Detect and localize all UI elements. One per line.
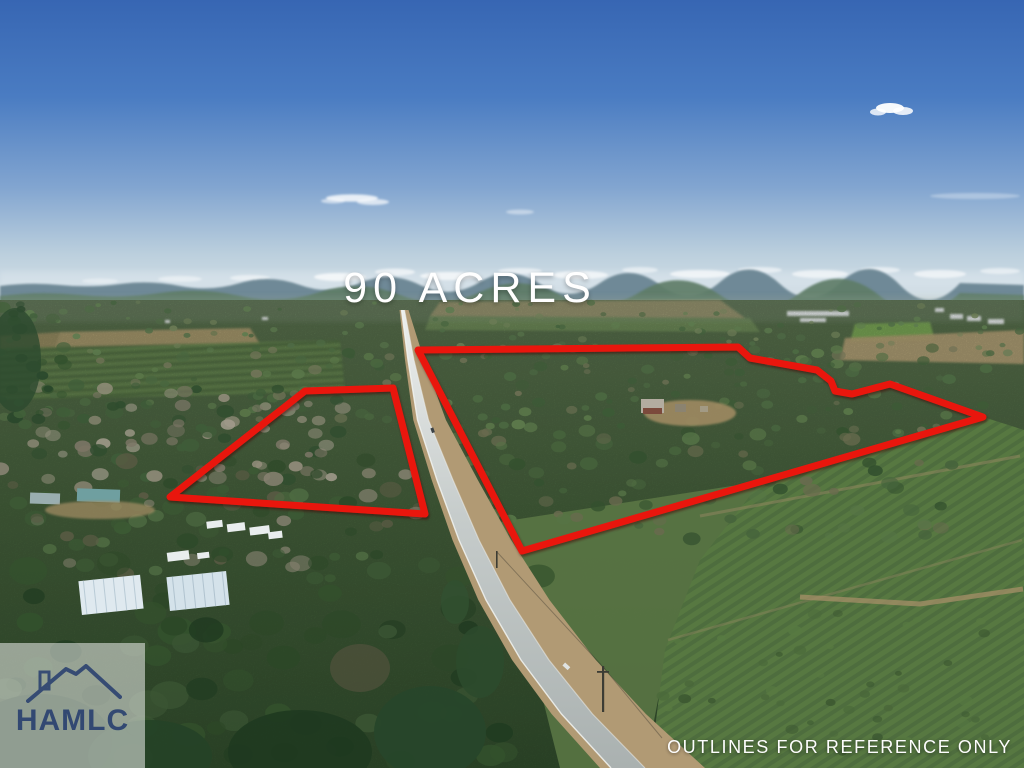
tree-blob: [940, 411, 952, 420]
tree-blob: [559, 325, 566, 330]
tree-blob: [717, 635, 726, 641]
tree-blob: [891, 402, 902, 410]
tree-blob: [942, 374, 956, 384]
tree-blob: [734, 402, 744, 409]
tree-blob: [684, 374, 691, 379]
tree-blob: [54, 355, 68, 365]
tree-blob: [277, 516, 292, 527]
tree-blob: [881, 531, 898, 543]
tree-blob: [325, 574, 336, 582]
tree-blob: [753, 337, 758, 341]
tree-blob: [664, 705, 673, 711]
tree-blob: [308, 428, 323, 438]
tree-blob: [319, 440, 334, 451]
tree-blob: [806, 406, 817, 414]
tree-blob: [838, 523, 851, 532]
tree-blob: [584, 415, 592, 421]
tree-blob: [873, 716, 883, 723]
tree-blob: [217, 405, 235, 418]
tree-blob: [370, 550, 383, 559]
tree-blob: [917, 519, 931, 529]
tree-blob: [209, 471, 227, 484]
tree-blob: [727, 329, 737, 336]
tree-blob: [674, 639, 682, 645]
tree-blob: [146, 470, 162, 482]
tree-blob: [89, 416, 102, 425]
tree-blob: [596, 433, 611, 444]
tree-blob: [322, 610, 361, 638]
tree-blob: [595, 392, 607, 401]
tree-blob: [150, 681, 189, 709]
tree-blob: [856, 322, 866, 329]
tree-blob: [828, 309, 833, 312]
tree-blob: [160, 380, 169, 387]
tree-blob: [643, 383, 650, 388]
tree-blob: [329, 553, 340, 561]
tree-blob: [310, 470, 322, 479]
tree-blob: [330, 395, 344, 405]
tree-blob: [18, 420, 31, 430]
tree-blob: [478, 413, 488, 420]
tree-blob: [776, 700, 784, 706]
tree-blob: [764, 328, 772, 334]
tree-blob: [316, 340, 325, 347]
tree-blob: [141, 433, 158, 445]
tree-blob: [318, 585, 342, 602]
tree-blob: [287, 343, 294, 348]
tree-blob: [977, 401, 988, 409]
tree-blob: [107, 402, 119, 411]
tree-blob: [356, 552, 369, 561]
tree-blob: [478, 430, 489, 438]
tree-blob: [688, 322, 695, 327]
tree-blob: [58, 451, 68, 458]
tree-blob: [345, 527, 357, 536]
tree-blob: [460, 358, 468, 363]
tree-blob: [961, 711, 969, 717]
tree-blob: [559, 488, 567, 494]
tree-blob: [369, 521, 383, 531]
tree-blob: [292, 369, 305, 379]
tree-blob: [356, 453, 375, 467]
tree-blob: [164, 308, 171, 313]
tree-blob: [243, 306, 251, 312]
tree-blob: [833, 610, 843, 617]
tree-blob: [250, 351, 261, 359]
tree-blob: [529, 467, 545, 478]
tree-blob: [914, 324, 919, 328]
tree-blob: [713, 311, 719, 316]
tree-blob: [617, 423, 625, 429]
tree-blob: [926, 343, 939, 352]
tree-blob: [720, 337, 726, 341]
tree-blob: [678, 694, 691, 703]
tree-blob: [169, 325, 177, 331]
tree-blob: [9, 557, 47, 585]
tree-blob: [566, 406, 577, 414]
tree-blob: [297, 416, 307, 423]
tree-blob: [207, 721, 226, 735]
tree-blob: [777, 323, 784, 328]
tree-blob: [207, 347, 214, 352]
metal-roof-building: [166, 571, 229, 611]
tree-blob: [182, 465, 194, 474]
tree-blob: [504, 372, 516, 381]
tree-blob: [272, 549, 284, 558]
tree-blob: [817, 427, 826, 433]
tree-blob: [362, 468, 376, 478]
tree-blob: [264, 472, 284, 486]
metal-roof-building: [78, 575, 143, 615]
tree-blob: [688, 446, 704, 458]
tree-blob: [914, 317, 921, 322]
tree-blob: [473, 395, 483, 403]
tree-blob: [837, 305, 847, 312]
tree-blob: [582, 405, 590, 411]
tree-blob: [888, 322, 895, 327]
tree-blob: [380, 482, 402, 498]
tree-blob: [785, 525, 799, 535]
tree-blob: [146, 376, 158, 384]
tree-blob: [776, 652, 783, 657]
sky: [0, 0, 1024, 302]
tree-blob: [136, 300, 141, 304]
tree-blob: [641, 365, 654, 374]
tree-blob: [342, 331, 348, 335]
tree-blob: [685, 680, 694, 687]
tree-blob: [708, 698, 716, 704]
acreage-label: 90 ACRES: [325, 264, 615, 313]
tree-blob: [725, 358, 737, 366]
tree-blob: [177, 386, 193, 397]
tree-blob: [50, 392, 58, 398]
tree-blob: [93, 392, 102, 398]
tree-blob: [80, 398, 91, 406]
tree-blob: [503, 323, 510, 328]
tree-blob: [796, 415, 807, 423]
tree-blob: [827, 644, 834, 649]
tree-blob: [221, 419, 235, 429]
tree-blob: [289, 461, 303, 471]
tree-blob: [385, 353, 395, 360]
tree-blob: [490, 742, 518, 762]
tree-blob: [876, 353, 888, 362]
tree-blob: [807, 720, 814, 725]
tree-blob: [796, 334, 806, 341]
tree-blob: [831, 332, 840, 338]
tree-blob: [218, 394, 229, 402]
tree-blob: [27, 439, 39, 448]
tree-blob: [629, 451, 647, 464]
tree-blob: [496, 442, 507, 450]
tree-blob: [486, 423, 495, 430]
tree-blob: [881, 477, 898, 490]
tree-blob: [32, 414, 46, 424]
tree-blob: [850, 505, 865, 515]
tree-blob: [567, 463, 577, 470]
tree-blob: [898, 684, 910, 692]
tree-blob: [499, 422, 509, 429]
tree-blob: [982, 325, 988, 329]
tree-blob: [618, 490, 626, 496]
tree-blob: [670, 351, 684, 361]
tree-blob: [811, 349, 824, 358]
tree-blob: [359, 489, 378, 502]
tree-blob: [295, 355, 307, 363]
tree-blob: [367, 562, 391, 579]
tree-blob: [177, 533, 199, 549]
tree-blob: [679, 327, 686, 332]
tree-blob: [60, 531, 74, 541]
tree-blob: [252, 345, 260, 351]
disclaimer-text: OUTLINES FOR REFERENCE ONLY: [667, 737, 1012, 758]
tree-blob: [156, 319, 164, 325]
tree-blob: [97, 551, 131, 575]
tree-blob: [817, 672, 825, 678]
mobile-home: [77, 488, 120, 502]
tree-blob: [59, 309, 68, 315]
tree-blob: [163, 362, 171, 368]
tree-blob: [330, 426, 347, 438]
tree-blob: [241, 634, 263, 650]
tree-blob: [976, 345, 983, 350]
tree-blob: [87, 349, 94, 354]
tree-blob: [308, 556, 329, 571]
tree-blob: [251, 370, 262, 378]
tree-blob: [441, 321, 449, 327]
tree-blob: [509, 458, 526, 470]
tree-blob: [662, 380, 669, 385]
tree-blob: [380, 342, 389, 348]
tree-blob: [611, 322, 620, 329]
tree-blob: [489, 319, 497, 325]
tree-blob: [669, 446, 681, 455]
tree-blob: [135, 373, 144, 379]
tree-blob: [570, 513, 583, 522]
tree-blob: [935, 502, 947, 511]
tree-blob: [982, 350, 991, 356]
tree-blob: [630, 396, 639, 402]
tree-blob: [184, 333, 191, 338]
tree-blob: [683, 312, 688, 316]
tree-blob: [553, 430, 566, 439]
tree-blob: [46, 314, 60, 324]
tree-blob: [826, 699, 836, 706]
tree-blob: [535, 313, 543, 319]
tree-blob: [738, 450, 748, 457]
tree-blob: [268, 460, 286, 473]
tree-blob: [326, 473, 337, 481]
tree-blob: [382, 416, 392, 424]
tree-blob: [888, 341, 895, 346]
tree-blob: [825, 407, 831, 411]
tree-blob: [174, 343, 181, 348]
tree-blob: [131, 383, 140, 389]
tree-blob: [639, 312, 646, 317]
tree-blob: [1003, 349, 1013, 356]
aerial-photo: 90 ACRES OUTLINES FOR REFERENCE ONLY HAM…: [0, 0, 1024, 768]
tree-blob: [626, 479, 637, 487]
tree-blob: [979, 629, 990, 637]
tree-blob: [895, 430, 901, 434]
tree-blob: [711, 442, 720, 449]
tree-blob: [161, 616, 188, 635]
tree-blob: [829, 731, 838, 737]
tree-blob: [609, 496, 622, 506]
tree-blob: [145, 328, 153, 334]
tree-blob: [432, 317, 438, 321]
tree-blob: [57, 391, 67, 399]
tree-blob: [186, 512, 206, 527]
tree-blob: [917, 303, 925, 309]
tree-blob: [267, 646, 300, 670]
tree-blob: [794, 646, 807, 655]
tree-blob: [268, 347, 277, 354]
tree-blob: [111, 301, 117, 305]
tree-blob: [355, 409, 368, 419]
tree-blob: [524, 422, 538, 432]
tree-blob: [355, 322, 364, 329]
tree-blob: [834, 401, 840, 405]
tree-blob: [949, 346, 958, 352]
tree-blob: [116, 453, 138, 469]
tree-blob: [759, 659, 768, 666]
tree-blob: [486, 723, 513, 743]
tree-blob: [305, 452, 313, 458]
tree-blob: [201, 426, 217, 438]
tree-blob: [280, 442, 290, 449]
tree-blob: [164, 389, 178, 399]
tree-blob: [803, 484, 821, 497]
tree-blob: [534, 479, 545, 487]
tree-blob: [956, 719, 969, 729]
tree-blob: [720, 309, 727, 314]
tree-blob: [561, 365, 569, 371]
tree-blob: [278, 308, 282, 311]
tree-blob: [578, 336, 587, 342]
tree-blob: [849, 426, 859, 433]
tree-blob: [766, 686, 779, 695]
tree-blob: [868, 465, 883, 476]
tree-blob: [551, 441, 566, 452]
tree-blob: [7, 481, 18, 489]
tree-blob: [749, 490, 767, 503]
tree-blob: [519, 407, 532, 416]
tree-blob: [36, 427, 51, 438]
tree-blob: [971, 313, 978, 318]
tree-blob: [628, 378, 637, 385]
tree-blob: [843, 433, 860, 446]
brand-name: HAMLC: [16, 706, 129, 736]
tree-blob: [654, 528, 664, 535]
tree-blob: [917, 356, 929, 365]
tree-blob: [945, 460, 958, 470]
tree-blob: [41, 474, 55, 484]
tree-blob: [740, 381, 747, 386]
tree-blob: [724, 514, 736, 523]
tree-blob: [757, 389, 771, 399]
tree-blob: [750, 428, 767, 440]
tree-blob: [176, 352, 190, 362]
tree-blob: [809, 321, 814, 324]
tree-blob: [512, 420, 526, 430]
tree-blob: [746, 529, 760, 539]
tree-blob: [653, 516, 667, 526]
tree-blob: [957, 332, 963, 336]
tree-blob: [95, 303, 101, 307]
tree-blob: [173, 419, 184, 427]
tree-blob: [378, 625, 397, 638]
tree-blob: [77, 414, 90, 424]
tree-blob: [312, 416, 326, 426]
tree-blob: [211, 331, 218, 336]
brand-watermark: HAMLC: [0, 643, 145, 768]
tree-blob: [639, 500, 653, 510]
tree-blob: [743, 460, 757, 470]
tree-blob: [877, 327, 882, 331]
tree-blob: [96, 358, 105, 364]
tree-blob: [163, 478, 178, 489]
tree-blob: [682, 432, 700, 445]
tree-blob: [579, 425, 596, 437]
tree-blob: [288, 508, 304, 520]
tree-blob: [125, 429, 135, 436]
tree-blob: [126, 404, 138, 412]
tree-blob: [256, 389, 266, 397]
tree-blob: [252, 405, 263, 413]
tree-blob: [895, 671, 902, 676]
tree-blob: [671, 391, 681, 398]
tree-blob: [16, 301, 25, 307]
tree-blob: [83, 535, 99, 547]
tree-blob: [118, 480, 129, 488]
tree-blob: [304, 401, 313, 407]
tree-blob: [771, 425, 780, 432]
tree-blob: [913, 617, 922, 623]
tree-blob: [73, 333, 81, 339]
tree-blob: [218, 433, 231, 443]
tree-blob: [236, 470, 250, 480]
tree-blob: [186, 678, 217, 701]
tree-blob: [330, 357, 340, 364]
tree-blob: [831, 345, 843, 354]
tree-blob: [364, 353, 374, 360]
tree-blob: [843, 408, 853, 415]
tree-blob: [854, 302, 862, 307]
tree-blob: [31, 514, 44, 523]
tree-blob: [63, 558, 76, 567]
tree-blob: [860, 690, 870, 698]
tree-blob: [85, 306, 95, 313]
tree-blob: [10, 497, 28, 510]
tree-blob: [162, 499, 184, 515]
tree-blob: [798, 377, 807, 383]
tree-blob: [308, 365, 321, 375]
tree-blob: [602, 408, 614, 417]
tree-blob: [370, 359, 383, 368]
mobile-home: [30, 492, 60, 504]
tree-blob: [845, 367, 859, 377]
tree-blob: [249, 334, 254, 338]
tree-blob: [189, 617, 224, 642]
tree-blob: [183, 318, 191, 324]
tree-blob: [657, 691, 670, 700]
tree-blob: [304, 627, 327, 643]
tree-blob: [724, 369, 734, 376]
tree-blob: [827, 362, 835, 368]
tree-blob: [263, 371, 272, 377]
tree-blob: [149, 566, 163, 576]
